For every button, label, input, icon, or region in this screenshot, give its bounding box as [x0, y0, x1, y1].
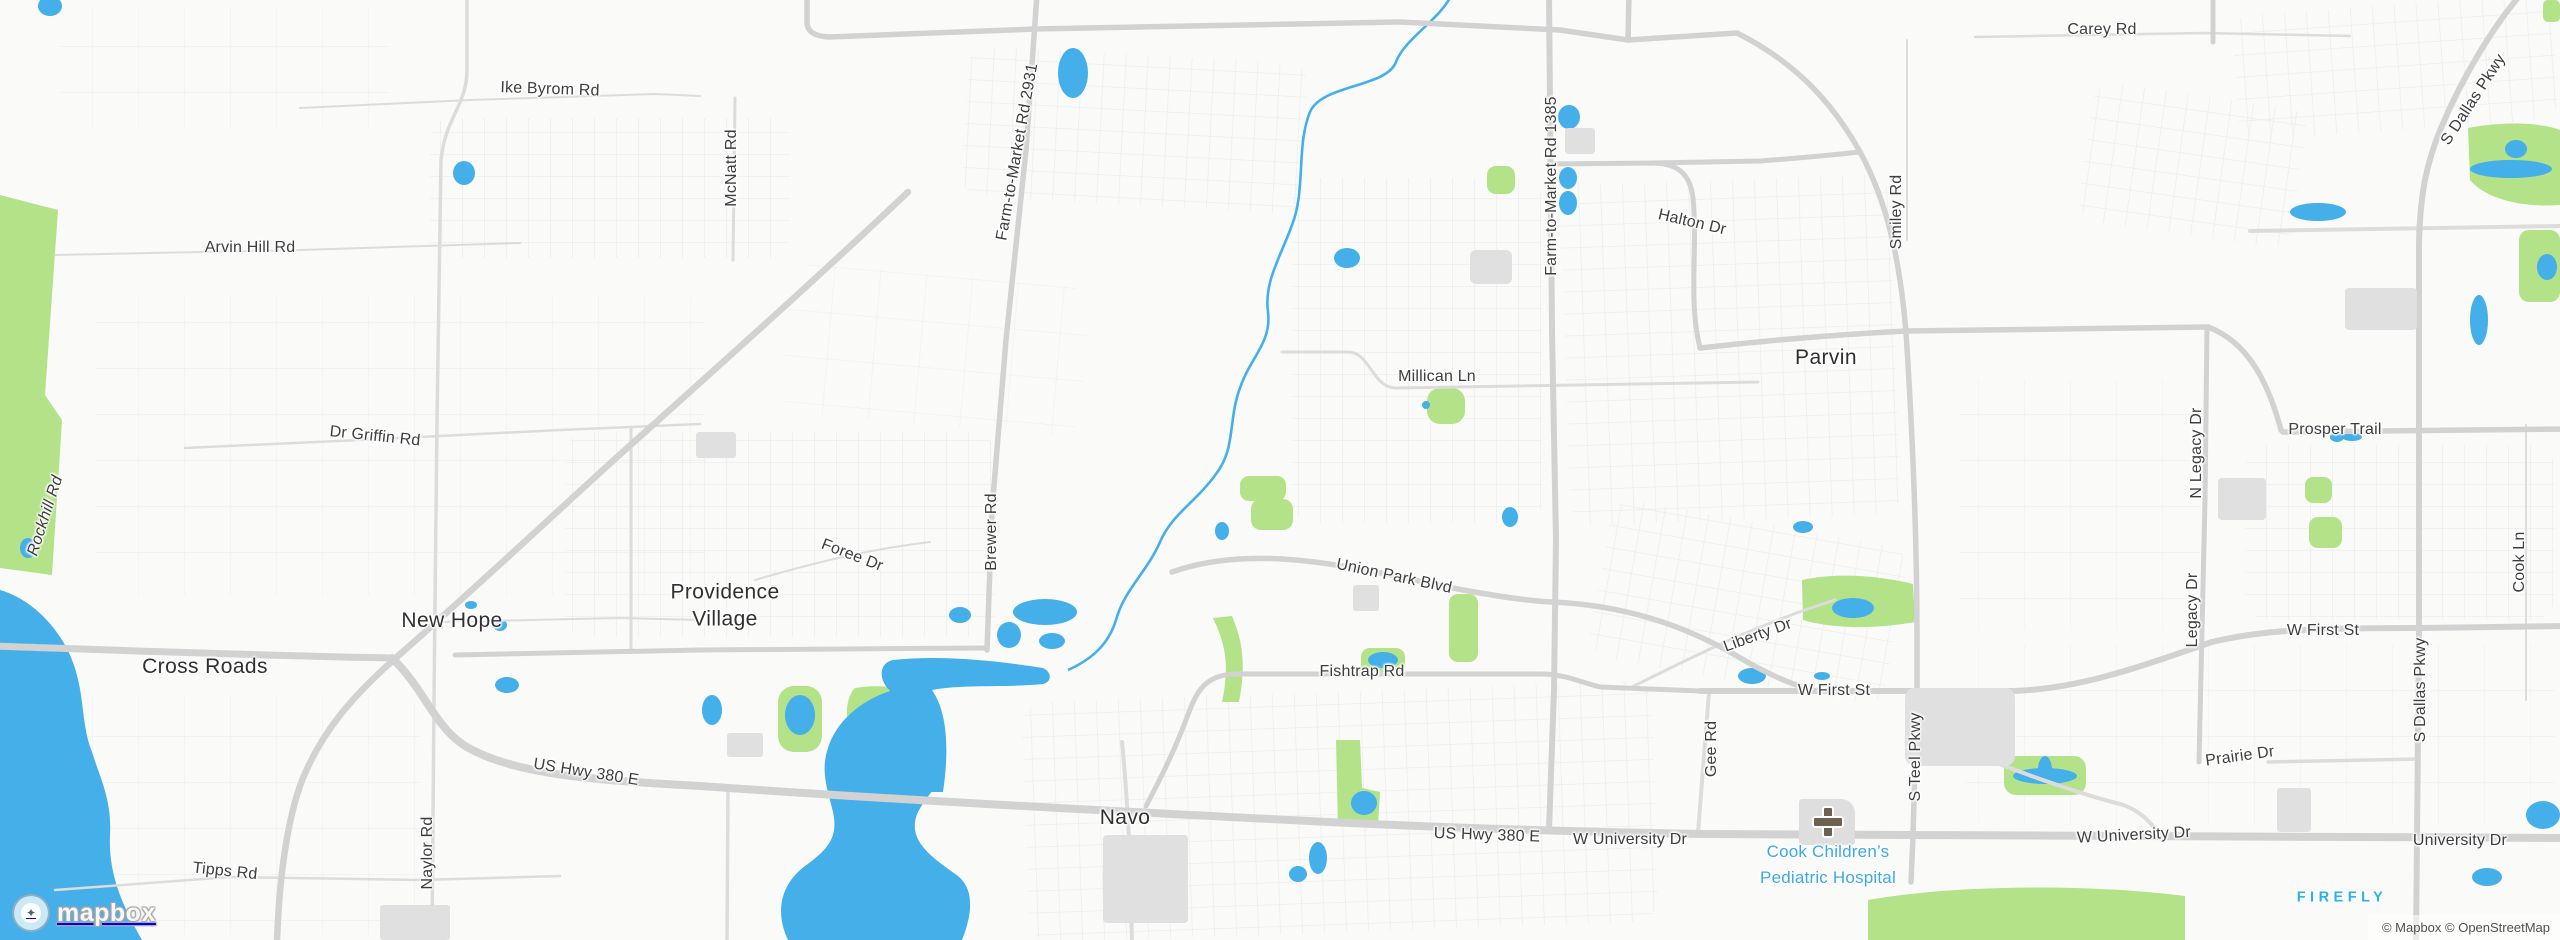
- map-canvas[interactable]: Cross RoadsNew HopeProvidence VillageNav…: [0, 0, 2560, 940]
- hospital-cross-icon: [1812, 806, 1844, 838]
- mapbox-logo[interactable]: ✦ mapbox: [12, 894, 156, 932]
- mapbox-wordmark: mapbox: [57, 899, 156, 928]
- mapbox-pin-icon: ✦: [12, 894, 50, 932]
- attribution-bar[interactable]: © Mapbox © OpenStreetMap: [2368, 915, 2560, 940]
- basemap-svg: [0, 0, 2560, 940]
- attribution-links[interactable]: © Mapbox © OpenStreetMap: [2382, 920, 2550, 935]
